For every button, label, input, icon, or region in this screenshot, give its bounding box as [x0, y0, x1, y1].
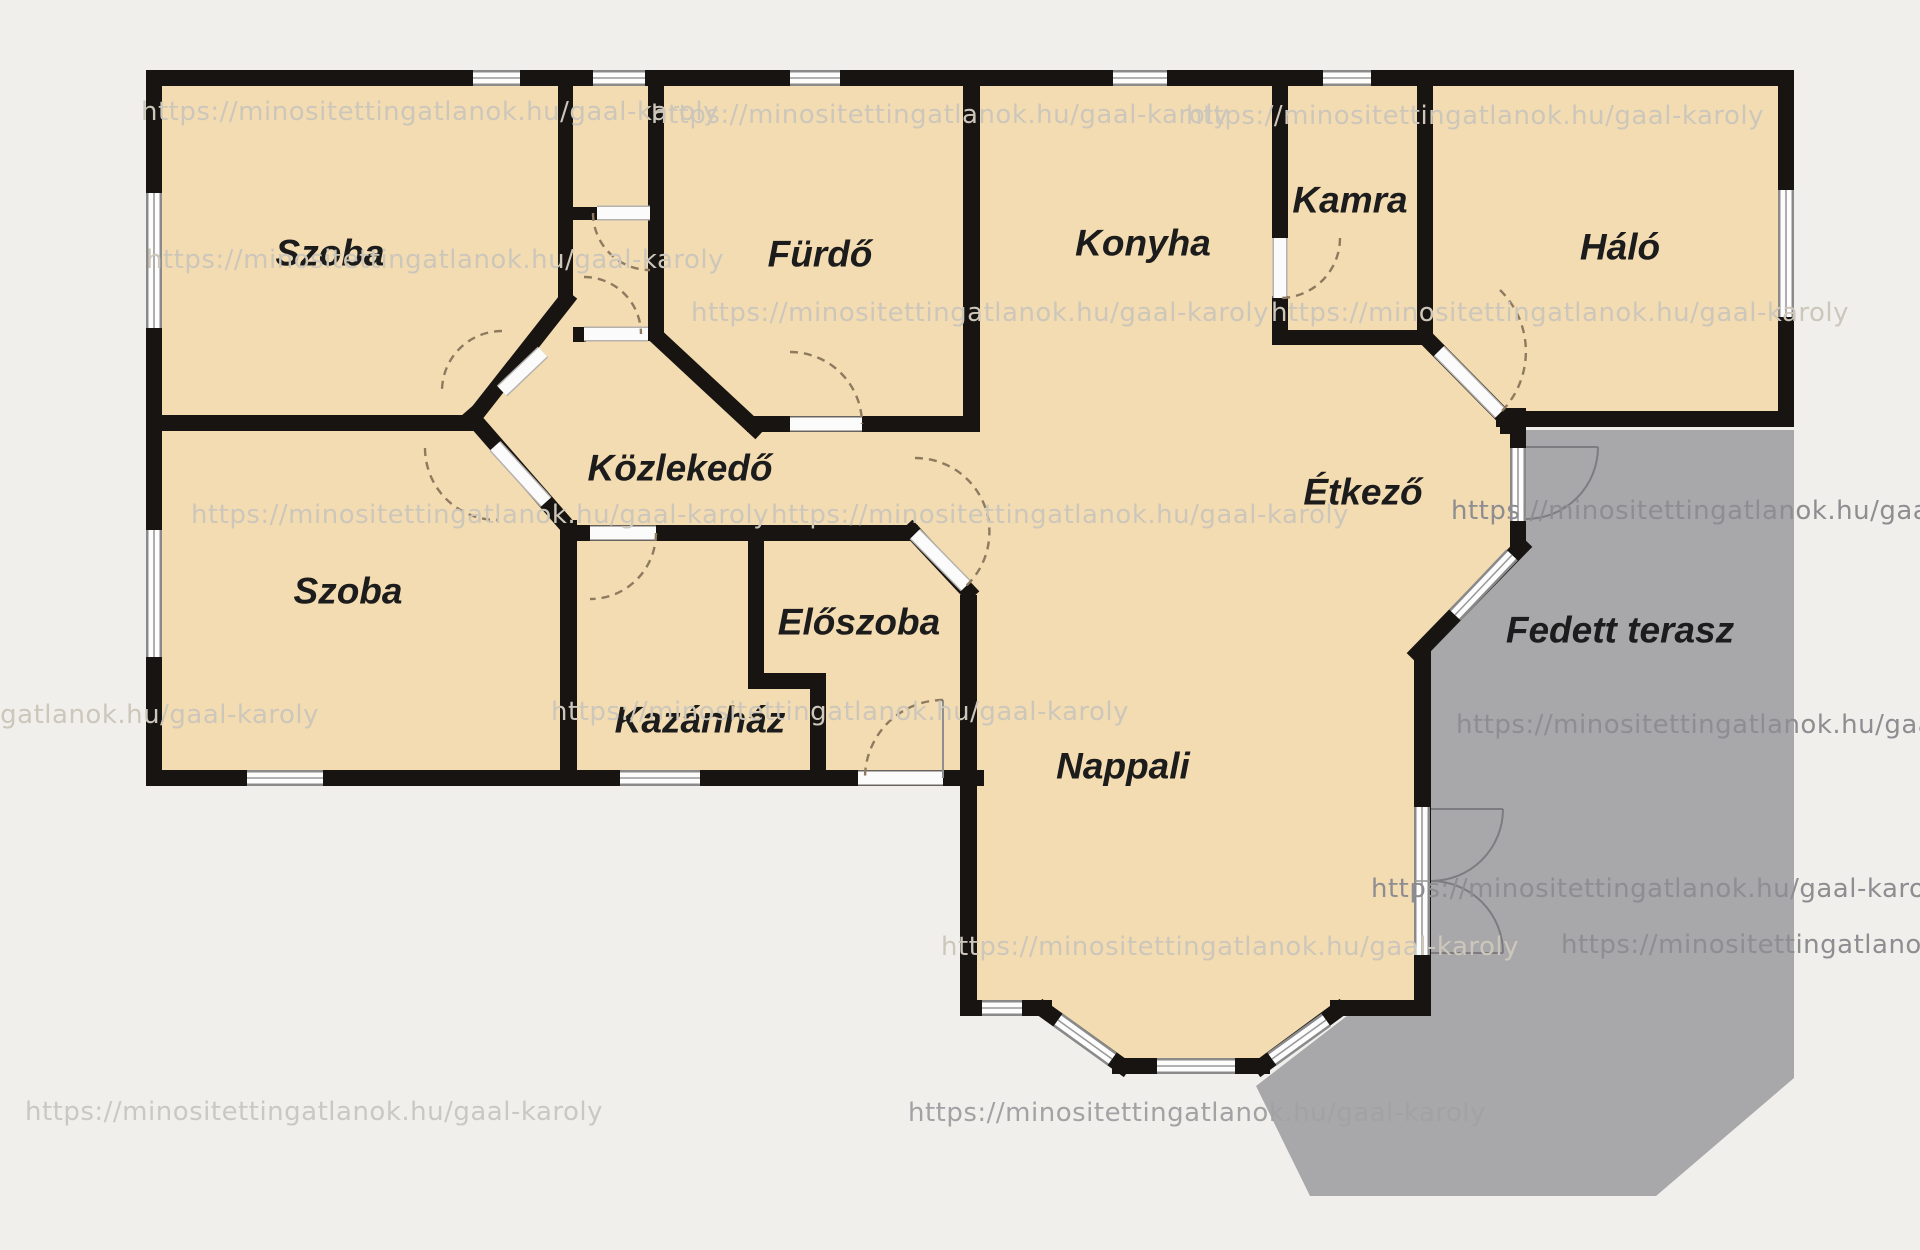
watermark-text: https://minositettingatlanok.hu/gaal-kar… — [146, 245, 724, 275]
room-label-nappali: Nappali — [1056, 746, 1190, 787]
wall-kazan-step — [748, 673, 826, 689]
wall-szoba1-bottom — [162, 415, 478, 431]
room-label-fedett-terasz: Fedett terasz — [1506, 610, 1735, 651]
room-label-eloszoba: Előszoba — [778, 602, 940, 643]
watermark-text: https://minositettingatlanok.hu/gaal-kar… — [1561, 930, 1920, 960]
watermark-text: https://minositettingatlanok.hu/gaal-kar… — [1451, 496, 1920, 526]
floor-plan-canvas: SzobaFürdőKonyhaKamraHálóKözlekedőSzobaE… — [0, 0, 1920, 1250]
wall-kazan-east-upper — [748, 541, 764, 681]
watermark-text: https://minositettingatlanok.hu/gaal-kar… — [771, 500, 1349, 530]
wall-nappali-west — [960, 776, 977, 1016]
watermark-text: https://minositettingatlanok.hu/gaal-kar… — [1456, 710, 1920, 740]
room-label-halo: Háló — [1580, 227, 1660, 268]
wall-szoba2-east — [560, 520, 577, 776]
room-label-kamra: Kamra — [1292, 180, 1407, 221]
watermark-text: https://minositettingatlanok.hu/gaal-kar… — [691, 298, 1269, 328]
watermark-text: https://minositettingatlanok.hu/gaal-kar… — [1186, 101, 1764, 131]
watermark-text: https://minositettingatlanok.hu/gaal-kar… — [651, 100, 1229, 130]
watermark-text: https://minositettingatlanok.hu/gaal-kar… — [908, 1098, 1486, 1128]
watermark-text: https://minositettingatlanok.hu/gaal-kar… — [0, 700, 319, 730]
floor-plan-page: SzobaFürdőKonyhaKamraHálóKözlekedőSzobaE… — [0, 0, 1920, 1250]
watermark-text: https://minositettingatlanok.hu/gaal-kar… — [25, 1097, 603, 1127]
watermark-text: https://minositettingatlanok.hu/gaal-kar… — [941, 932, 1519, 962]
room-label-kozlekedo: Közlekedő — [587, 448, 773, 489]
wall-eloszoba-east — [960, 595, 977, 776]
watermark-text: https://minositettingatlanok.hu/gaal-kar… — [1271, 298, 1849, 328]
watermark-text: https://minositettingatlanok.hu/gaal-kar… — [1371, 874, 1920, 904]
watermark-text: https://minositettingatlanok.hu/gaal-kar… — [551, 697, 1129, 727]
wall-kamra-bottom — [1272, 330, 1433, 345]
room-label-szoba-2: Szoba — [294, 571, 403, 612]
wall-outer-top — [146, 70, 1794, 86]
room-label-konyha: Konyha — [1075, 223, 1211, 264]
watermark-text: https://minositettingatlanok.hu/gaal-kar… — [141, 97, 719, 127]
wall-outer-left — [146, 70, 162, 786]
wall-furdo-bottom — [747, 416, 980, 432]
watermark-text: https://minositettingatlanok.hu/gaal-kar… — [191, 500, 769, 530]
wall-furdo-konyha — [963, 86, 980, 432]
wall-halo-bottom — [1496, 411, 1794, 427]
room-label-furdo: Fürdő — [768, 234, 874, 275]
